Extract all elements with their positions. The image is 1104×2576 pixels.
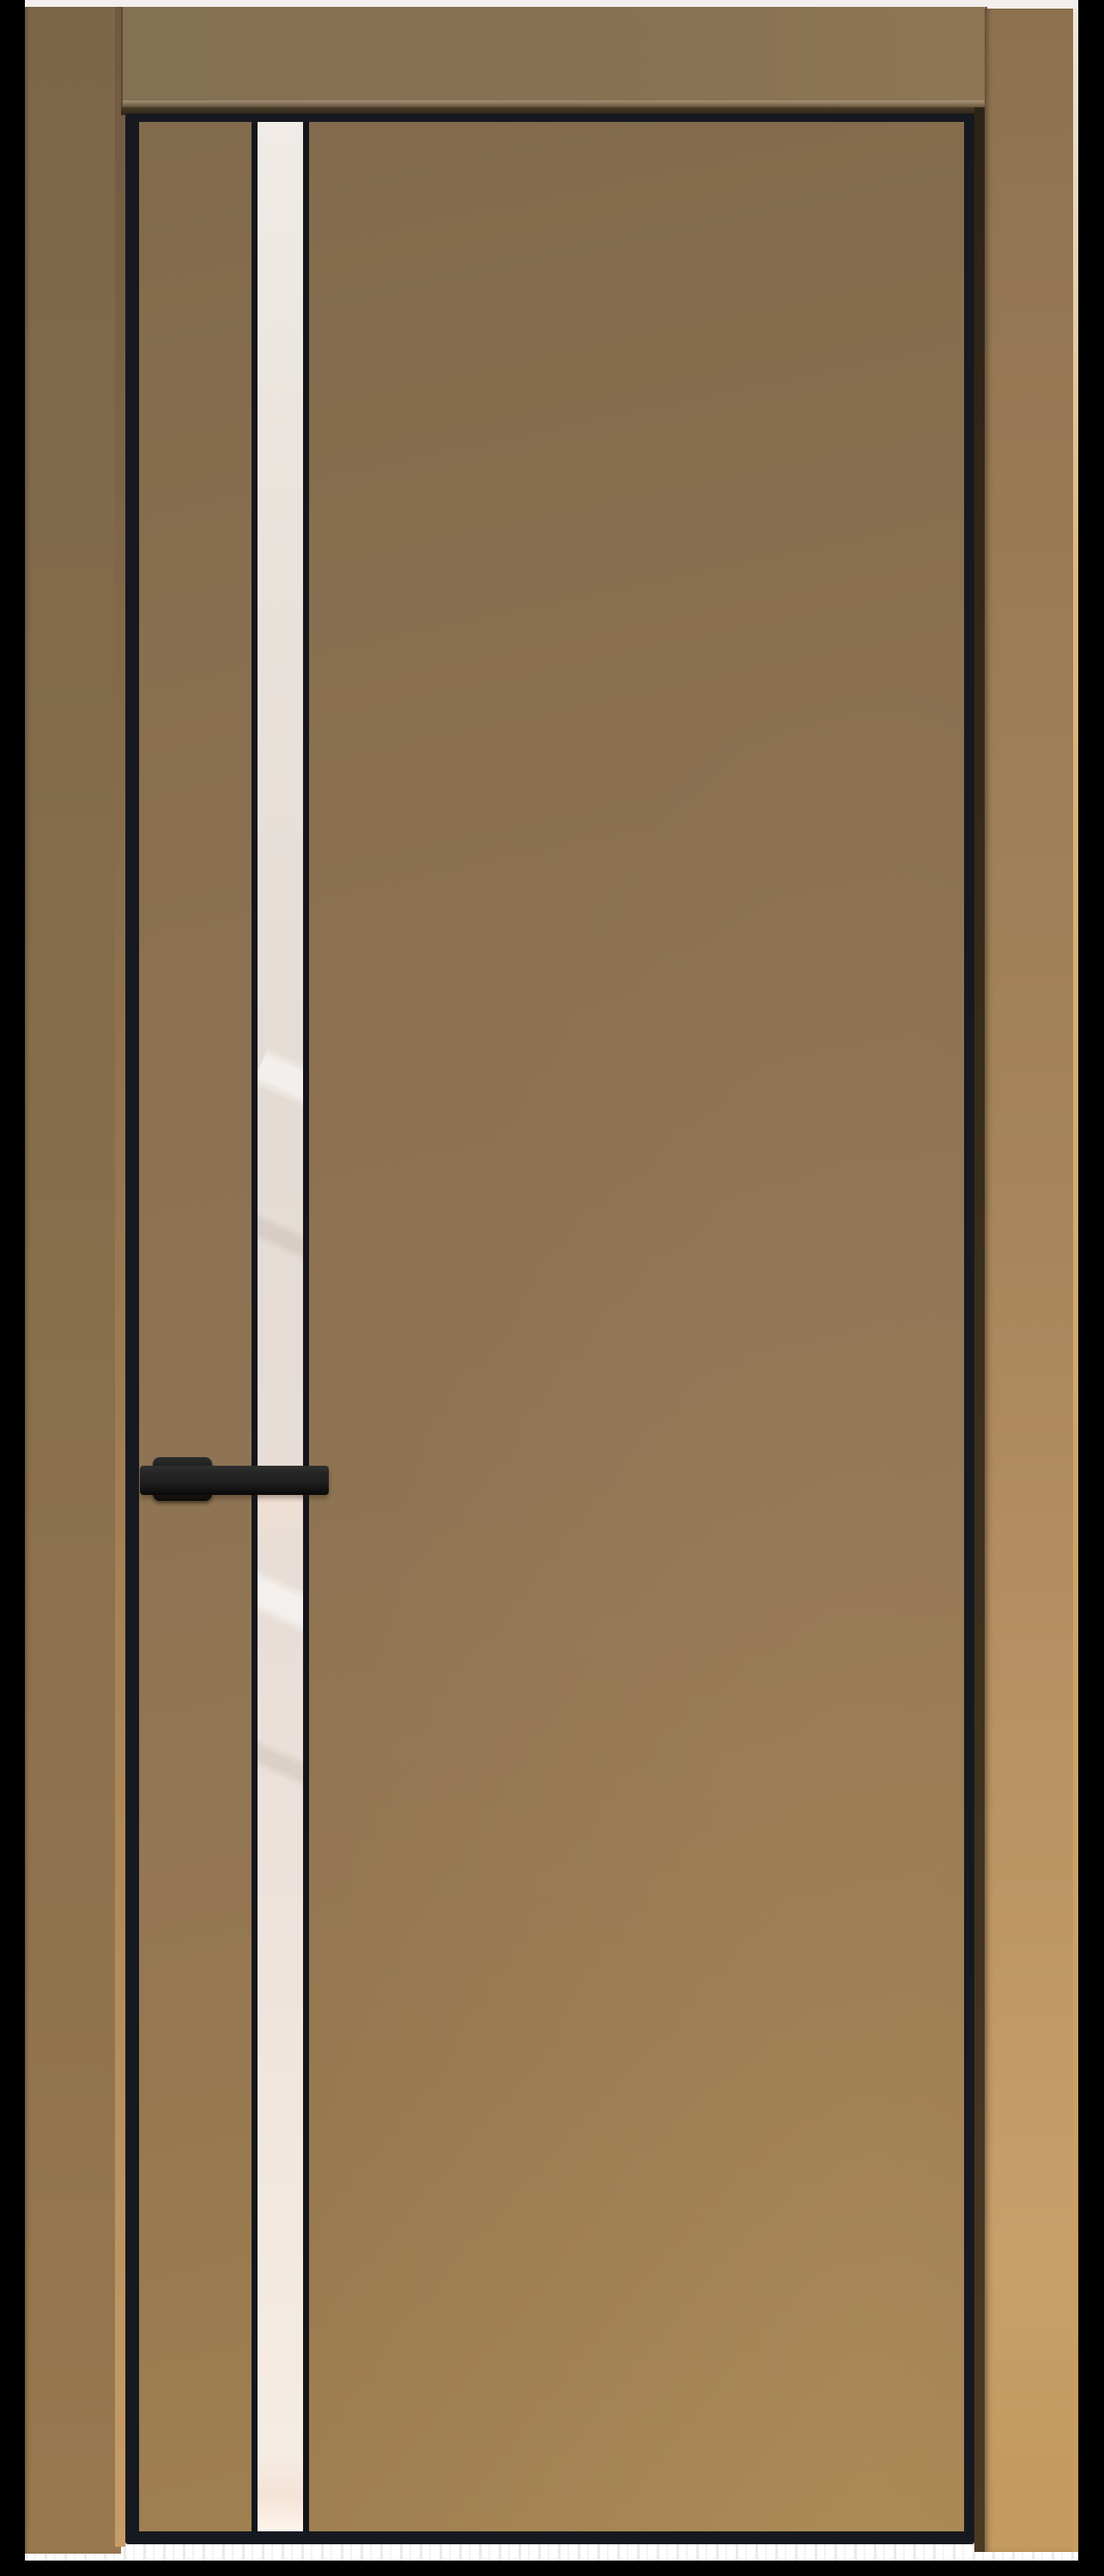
glass-moulding-right <box>303 122 309 2531</box>
door-product-photo <box>0 0 1104 2576</box>
door-casing-top <box>121 7 987 107</box>
door-leaf-black-edge <box>125 113 974 2544</box>
glass-moulding-left <box>252 122 258 2531</box>
door-handle-lever <box>140 1466 329 1495</box>
door-frame-reveal-right <box>974 107 985 2552</box>
door-casing-left <box>25 7 121 2554</box>
door-panel <box>139 122 964 2531</box>
door-casing-left-edge-highlight <box>115 7 125 2547</box>
door-casing-right <box>985 9 1078 2552</box>
glass-reflection-streaks <box>258 122 303 2531</box>
glass-floor-glow <box>258 2454 303 2531</box>
door-casing-right-edge-highlight <box>1073 9 1078 2552</box>
glass-insert <box>258 122 303 2531</box>
casing-top-bevel <box>123 100 986 107</box>
glass-handle-reflection <box>258 1488 303 1546</box>
